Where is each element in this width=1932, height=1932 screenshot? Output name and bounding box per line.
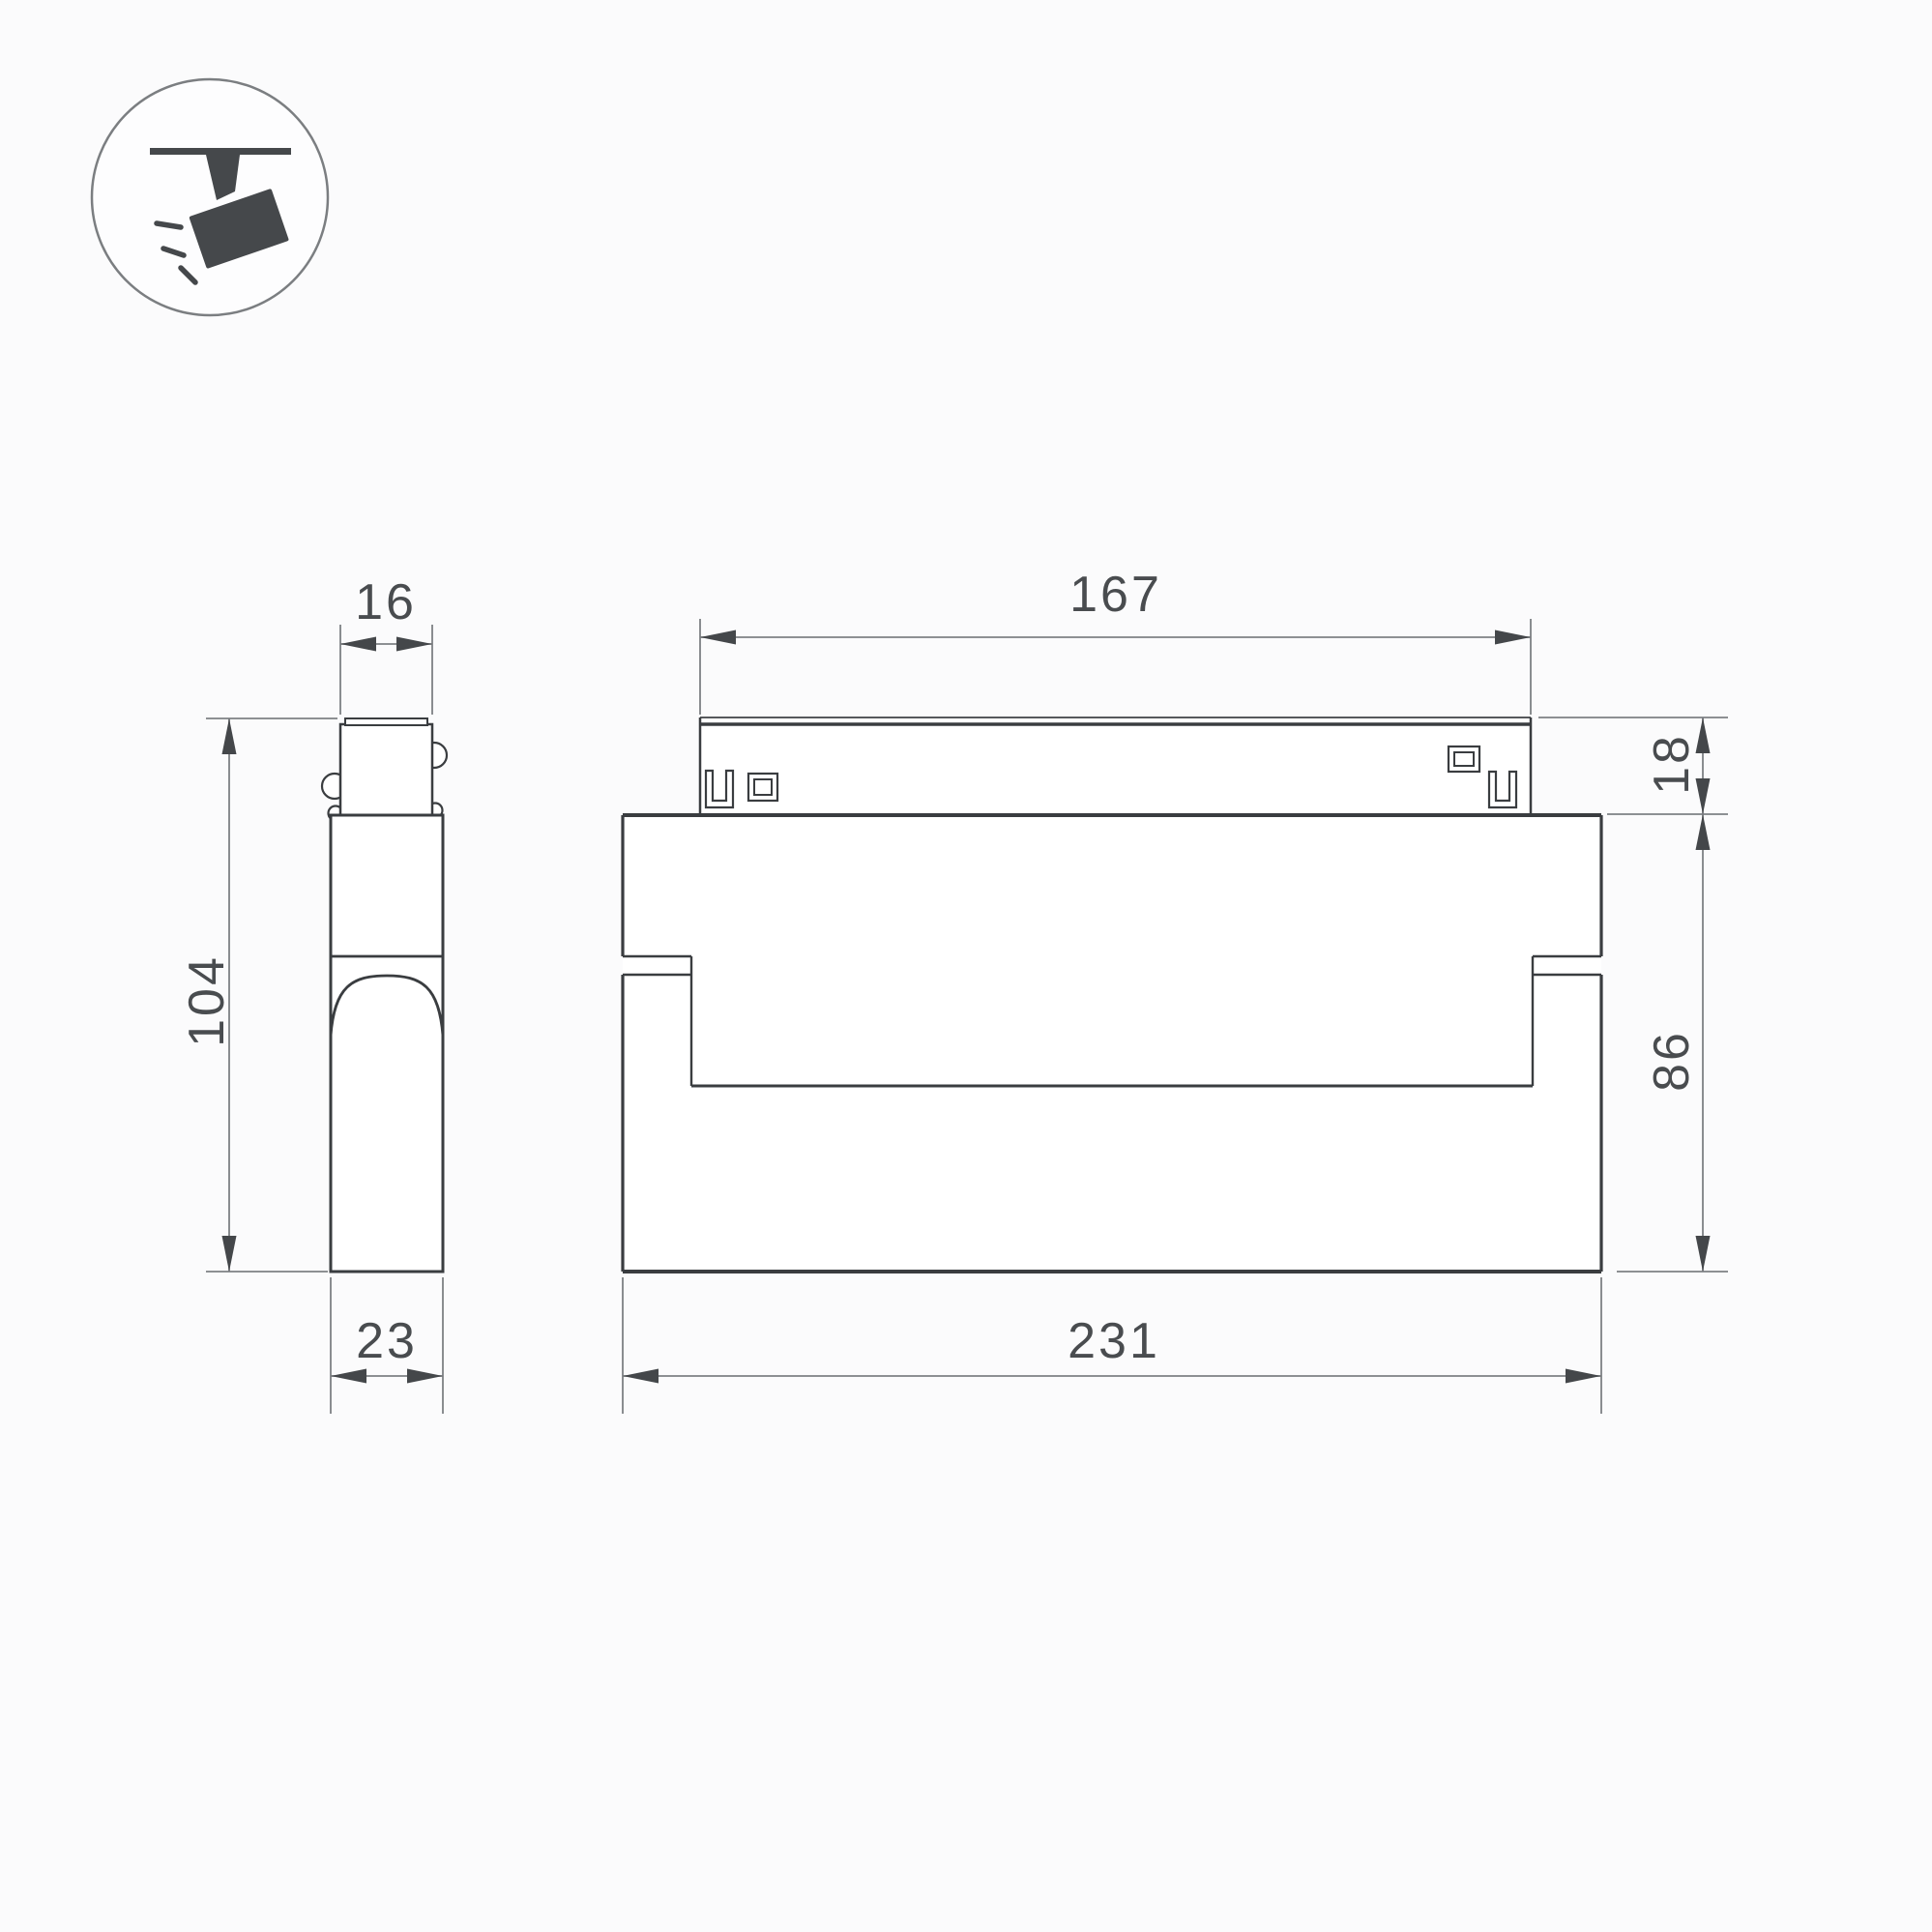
dim-label-104: 104 [179, 954, 235, 1047]
dimension-adapter-length: 167 [700, 567, 1531, 715]
icon-circle-border [92, 79, 328, 315]
technical-drawing-canvas: 16 104 23 167 18 86 231 [0, 0, 1932, 1932]
dim-label-23: 23 [356, 1313, 418, 1369]
track-spotlight-icon [92, 79, 328, 315]
technical-drawing-page: 16 104 23 167 18 86 231 [0, 0, 1932, 1932]
dim-label-231: 231 [1068, 1313, 1160, 1369]
dimension-side-adapter-width: 16 [340, 574, 432, 715]
side-view [322, 718, 447, 1272]
dimension-side-overall-height: 104 [179, 718, 337, 1272]
front-adapter-face [700, 717, 1531, 815]
dimension-body-length: 231 [623, 1277, 1601, 1414]
ceiling-track-bar-icon [150, 148, 291, 155]
side-body [331, 815, 443, 1272]
side-adapter-cap [345, 718, 427, 725]
dim-label-16: 16 [355, 574, 417, 630]
dim-label-167: 167 [1069, 567, 1162, 623]
dimension-side-body-depth: 23 [331, 1277, 443, 1414]
dim-label-18: 18 [1644, 733, 1700, 795]
front-body-face [623, 815, 1601, 1272]
dimension-adapter-height: 18 [1538, 717, 1728, 814]
front-view [623, 717, 1601, 1272]
dimension-body-height: 86 [1617, 814, 1728, 1272]
dim-label-86: 86 [1644, 1030, 1700, 1092]
side-adapter-stem [340, 724, 432, 815]
